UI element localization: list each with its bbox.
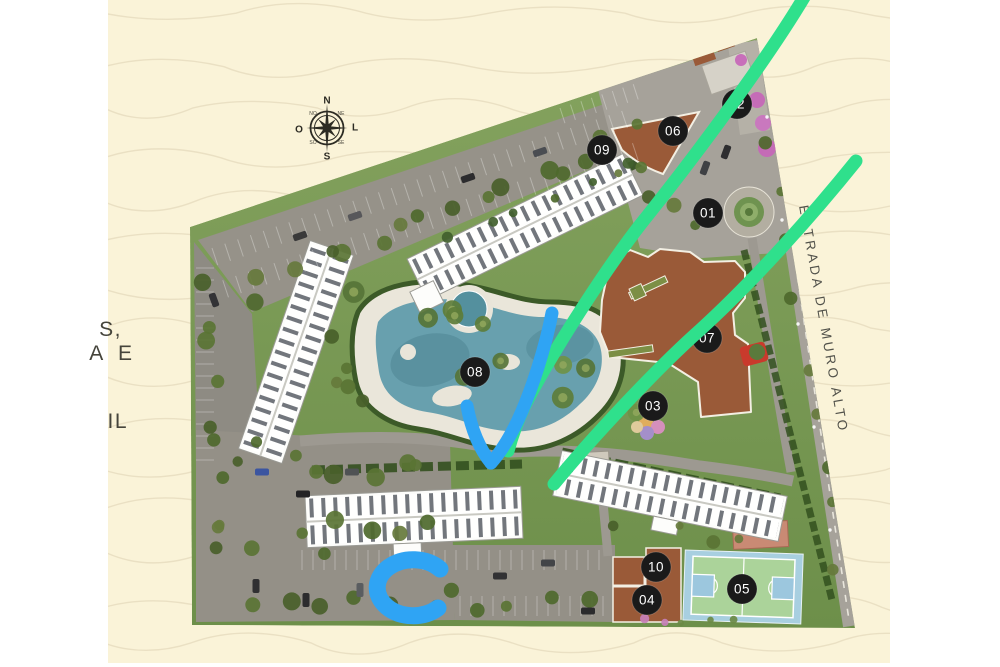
location-marker-09: 09 — [587, 135, 617, 165]
masterplan-page: 01 02 03 04 05 06 07 08 09 10 N L S O NE… — [0, 0, 1000, 667]
site-plan-image: 01 02 03 04 05 06 07 08 09 10 N L S O NE… — [0, 0, 1000, 667]
left-text-fragment-3: IL — [107, 410, 128, 433]
svg-text:05: 05 — [734, 582, 750, 597]
location-marker-04: 04 — [632, 585, 662, 615]
svg-text:10: 10 — [648, 560, 664, 575]
location-marker-06: 06 — [658, 116, 688, 146]
compass-north-label: N — [323, 96, 330, 107]
svg-text:SO: SO — [309, 140, 316, 146]
svg-text:06: 06 — [665, 124, 681, 139]
location-marker-05: 05 — [727, 574, 757, 604]
left-text-fragment-1: S, — [99, 318, 122, 341]
svg-text:08: 08 — [467, 365, 483, 380]
svg-text:09: 09 — [594, 143, 610, 158]
compass-east-label: L — [352, 123, 358, 134]
location-marker-01: 01 — [693, 198, 723, 228]
svg-text:SE: SE — [338, 140, 345, 146]
svg-text:03: 03 — [645, 399, 661, 414]
location-marker-10: 10 — [641, 552, 671, 582]
svg-text:04: 04 — [639, 593, 655, 608]
compass-south-label: S — [324, 152, 331, 163]
location-marker-08: 08 — [460, 357, 490, 387]
roundabout — [724, 187, 774, 237]
location-marker-03: 03 — [638, 391, 668, 421]
svg-text:NE: NE — [338, 111, 346, 117]
left-text-fragment-2: A E — [89, 342, 137, 365]
compass-west-label: O — [295, 125, 303, 136]
svg-text:NO: NO — [309, 111, 317, 117]
svg-text:01: 01 — [700, 206, 716, 221]
